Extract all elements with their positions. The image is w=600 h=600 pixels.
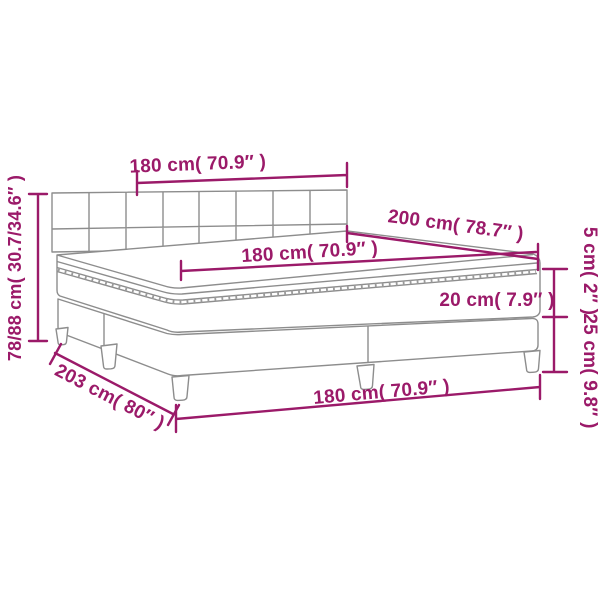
bed-diagram-canvas: 180 cm( 70.9″ ) 200 cm( 78.7″ ) 180 cm( … bbox=[0, 0, 600, 600]
dim-topper-thickness-label: 5 cm( 2″ ) bbox=[579, 227, 600, 315]
dim-mattress-thickness: 20 cm( 7.9″ ) bbox=[439, 290, 554, 311]
dim-base-width: 180 cm( 70.9″ ) bbox=[176, 375, 540, 432]
dim-overall-height-label: 78/88 cm( 30.7/34.6″ ) bbox=[5, 175, 25, 361]
dim-mattress-thickness-label: 20 cm( 7.9″ ) bbox=[439, 290, 554, 311]
product-dimension-diagram: 180 cm( 70.9″ ) 200 cm( 78.7″ ) 180 cm( … bbox=[0, 0, 600, 600]
dim-base-width-label: 180 cm( 70.9″ ) bbox=[312, 376, 450, 409]
leg-back-left bbox=[56, 328, 68, 345]
dim-height-bracket-lines bbox=[543, 269, 567, 372]
dim-height-brackets bbox=[543, 269, 567, 372]
dim-overall-height-line bbox=[29, 194, 47, 341]
dim-overall-height: 78/88 cm( 30.7/34.6″ ) bbox=[5, 175, 47, 361]
leg-mid-left bbox=[101, 344, 117, 369]
dim-headboard-width-label: 180 cm( 70.9″ ) bbox=[129, 151, 266, 177]
leg-right-corner bbox=[524, 351, 540, 373]
dim-base-height-label: 25 cm( 9.8″ ) bbox=[579, 313, 600, 428]
dim-overall-length-label: 203 cm( 80″ ) bbox=[51, 360, 168, 434]
dim-base-height: 25 cm( 9.8″ ) bbox=[579, 313, 600, 428]
dim-topper-thickness: 5 cm( 2″ ) bbox=[579, 227, 600, 315]
leg-front-corner bbox=[172, 376, 189, 401]
dim-headboard-width: 180 cm( 70.9″ ) bbox=[129, 151, 347, 195]
